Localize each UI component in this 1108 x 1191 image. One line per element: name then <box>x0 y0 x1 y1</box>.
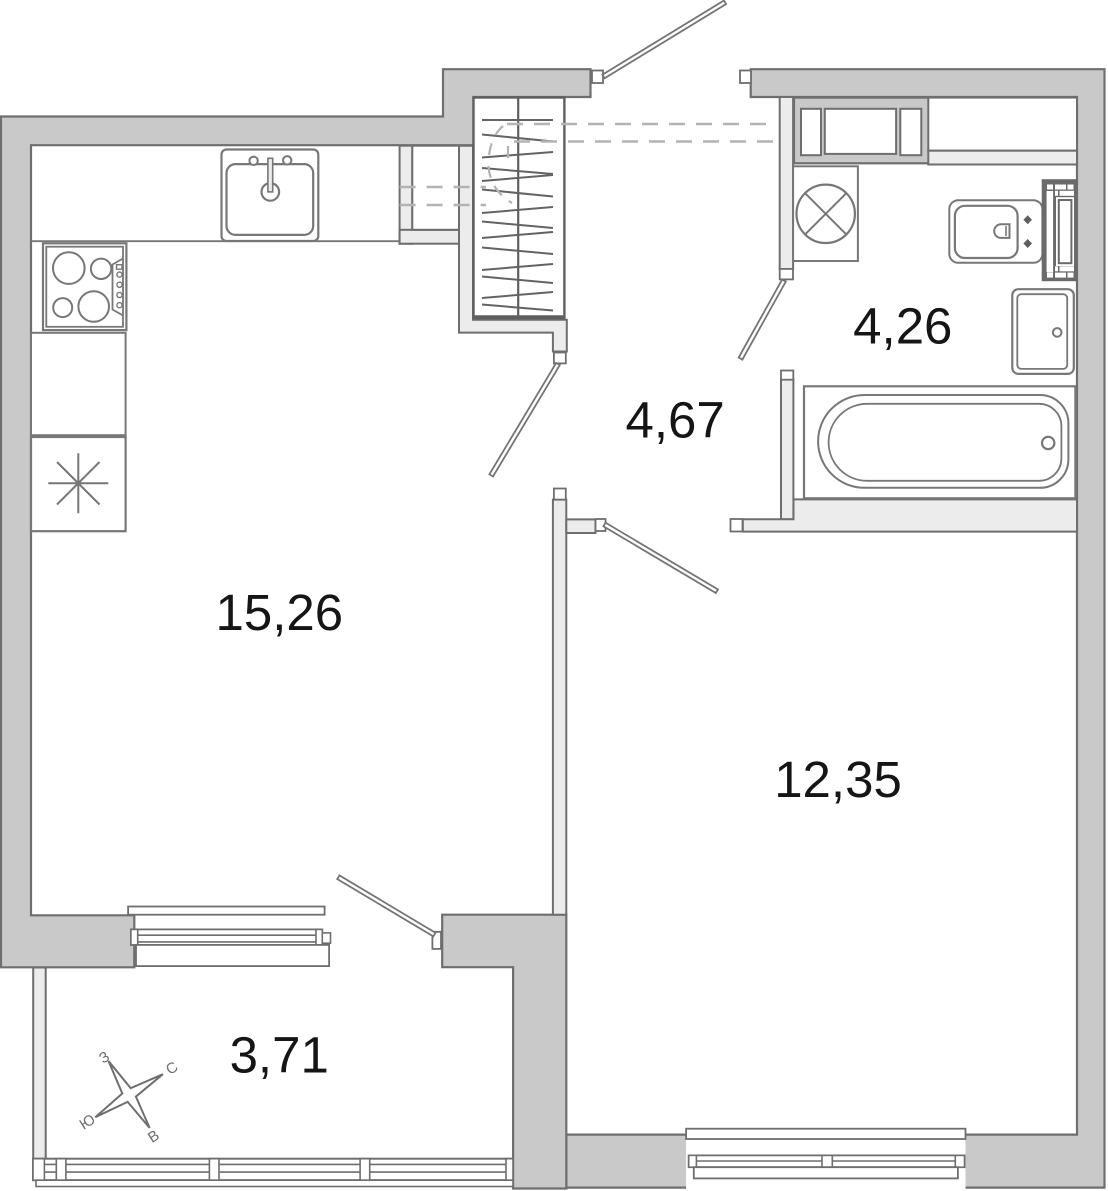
svg-text:4,26: 4,26 <box>853 298 952 355</box>
svg-text:12,35: 12,35 <box>774 751 902 808</box>
svg-text:4,67: 4,67 <box>625 392 724 449</box>
svg-text:15,26: 15,26 <box>215 584 343 641</box>
svg-text:3,71: 3,71 <box>230 1026 329 1083</box>
